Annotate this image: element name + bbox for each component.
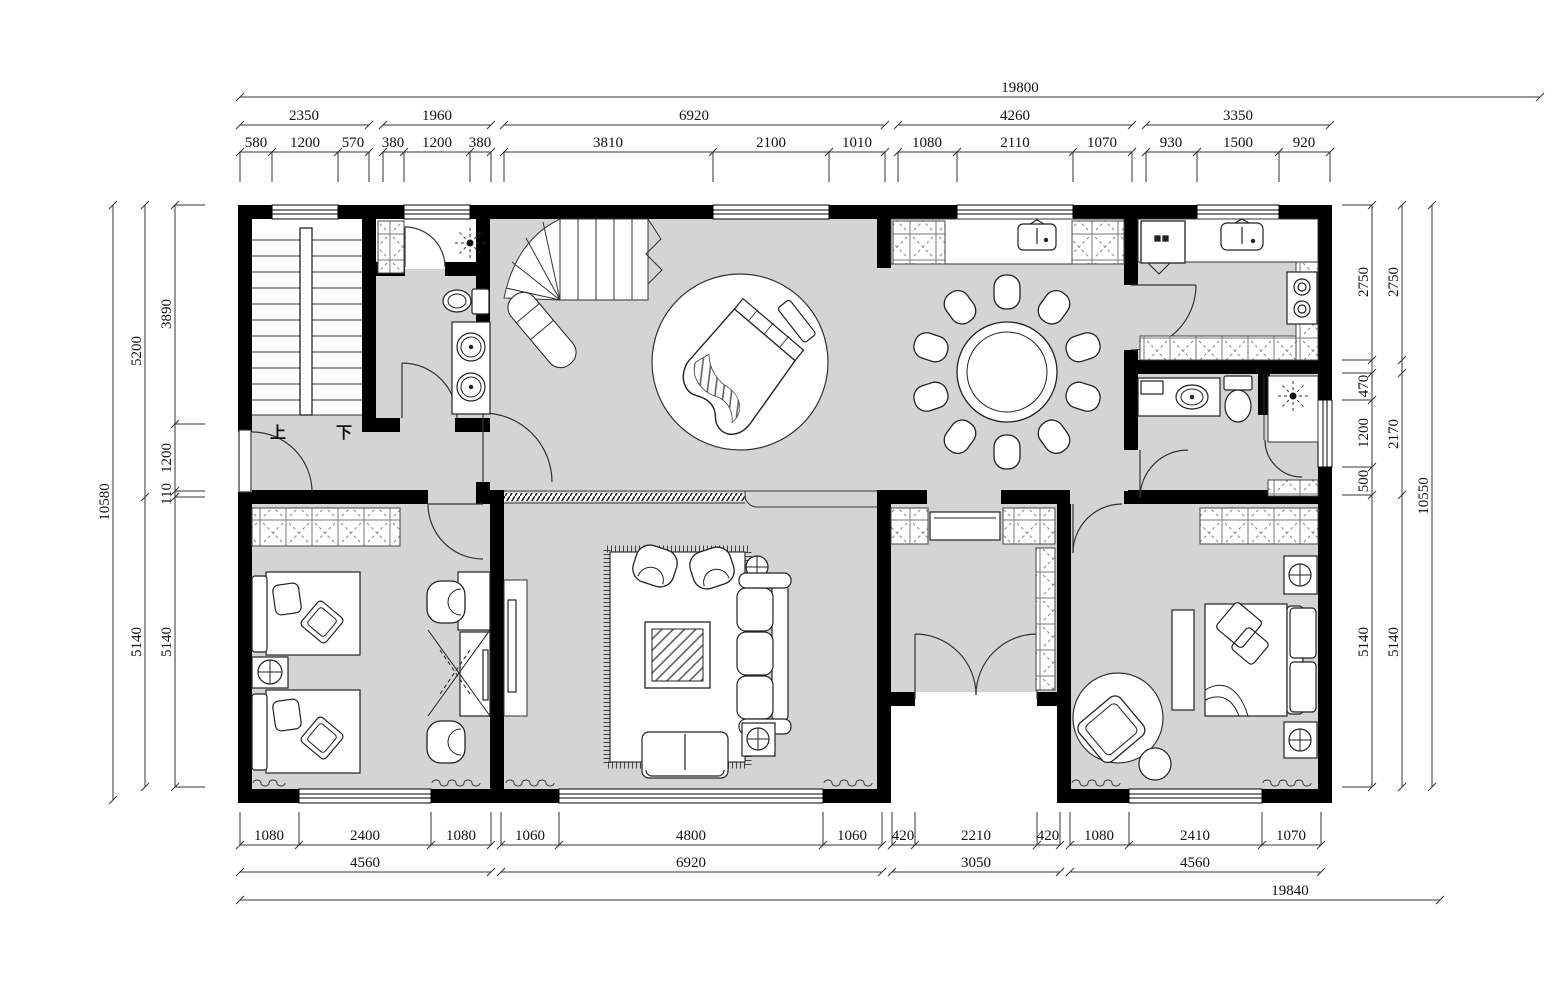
- bed-single-2: [252, 690, 360, 773]
- dim-right-fine-2: 1200: [1356, 418, 1372, 448]
- entry-bench: [930, 512, 1000, 540]
- dim-right-fine-3: 500: [1356, 470, 1372, 493]
- dim-top-fine-2: 570: [342, 135, 365, 151]
- toilet-2: [1224, 376, 1252, 422]
- dim-right-overall: 10550: [1416, 477, 1432, 515]
- wardrobe-left: [252, 508, 400, 546]
- double-bed: [1205, 601, 1316, 716]
- dim-bottom-fine-9: 1080: [1084, 828, 1114, 844]
- nightstand-left: [252, 657, 288, 688]
- window-hall: [713, 205, 829, 219]
- dim-top-fine-11: 1070: [1087, 135, 1117, 151]
- dim-bottom-fine-0: 1080: [254, 828, 284, 844]
- dim-right-groups-1: 2170: [1386, 419, 1402, 449]
- dim-bottom-groups-2: 3050: [961, 855, 991, 871]
- window-bath2: [1318, 400, 1332, 467]
- dim-top-groups-0: 2350: [289, 108, 319, 124]
- dim-bottom-fine-4: 4800: [676, 828, 706, 844]
- window-kitchen: [1197, 205, 1279, 219]
- bed-single-1: [252, 572, 360, 655]
- side-table-plant-2: [747, 728, 769, 750]
- dim-left-fine-3: 5140: [159, 627, 175, 657]
- tv: [508, 600, 516, 692]
- shoe-cabinet-3: [1036, 548, 1055, 690]
- stair-rail: [300, 228, 312, 415]
- dim-top-fine-13: 1500: [1223, 135, 1253, 151]
- lamp-2: [1289, 729, 1311, 751]
- dim-left-overall: 10580: [97, 483, 113, 521]
- dim-right-groups-0: 2750: [1386, 267, 1402, 297]
- dim-top-fine-8: 1010: [842, 135, 872, 151]
- sideboard-sink: [1018, 220, 1056, 250]
- dim-right-fine-1: 470: [1356, 375, 1372, 398]
- dim-top-fine-9: 1080: [912, 135, 942, 151]
- window-bedroom-left: [299, 789, 431, 803]
- dim-top-fine-3: 380: [382, 135, 405, 151]
- dim-left-fine-1: 1200: [159, 443, 175, 473]
- desk-chair-2: [427, 721, 465, 763]
- double-sink-vanity: [452, 322, 490, 414]
- dim-top-groups-1: 1960: [422, 108, 452, 124]
- dim-top-fine-1: 1200: [290, 135, 320, 151]
- floorplan-drawing: 上 下 198002350196069204260335058012005703…: [0, 0, 1549, 997]
- kitchen-sink: [1221, 219, 1263, 250]
- dim-left-groups-0: 5200: [129, 336, 145, 366]
- dim-top-fine-4: 1200: [422, 135, 452, 151]
- lamp-1: [1289, 564, 1311, 586]
- dim-right-groups-2: 5140: [1386, 627, 1402, 657]
- desk-chair-1: [427, 581, 465, 623]
- dim-bottom-fine-8: 420: [1037, 828, 1060, 844]
- dim-bottom-groups-3: 4560: [1180, 855, 1210, 871]
- dim-right-fine-4: 5140: [1356, 627, 1372, 657]
- stairs-down-label: 下: [336, 423, 352, 442]
- loveseat: [642, 732, 728, 778]
- dim-bottom-fine-6: 420: [892, 828, 915, 844]
- dim-bottom-fine-2: 1080: [446, 828, 476, 844]
- dim-top-fine-0: 580: [245, 135, 268, 151]
- wardrobe-right: [1200, 508, 1318, 544]
- dim-top-groups-4: 3350: [1223, 108, 1253, 124]
- dim-bottom-fine-1: 2400: [350, 828, 380, 844]
- stairs-up-label: 上: [270, 423, 286, 442]
- dim-left-fine-0: 3890: [159, 299, 175, 329]
- coffee-table: [645, 622, 710, 688]
- dim-left-fine-2: 110: [159, 483, 175, 505]
- bed-bench: [1172, 610, 1194, 710]
- dim-top-fine-7: 2100: [756, 135, 786, 151]
- dim-top-fine-14: 920: [1293, 135, 1316, 151]
- dim-top-groups-3: 4260: [1000, 108, 1030, 124]
- shoe-cabinet-1: [891, 508, 928, 544]
- floorplan-canvas: 上 下 198002350196069204260335058012005703…: [0, 0, 1549, 997]
- dim-bottom-fine-10: 2410: [1180, 828, 1210, 844]
- shoe-cabinet-2: [1003, 508, 1055, 544]
- dim-left-groups-1: 5140: [129, 627, 145, 657]
- dim-top-overall: 19800: [1001, 80, 1039, 96]
- dim-top-fine-6: 3810: [593, 135, 623, 151]
- sofa: [737, 573, 791, 734]
- window-bath1: [404, 205, 470, 219]
- dim-bottom-fine-7: 2210: [961, 828, 991, 844]
- dim-bottom-fine-5: 1060: [837, 828, 867, 844]
- dim-right-fine-0: 2750: [1356, 267, 1372, 297]
- window-living: [559, 789, 823, 803]
- dim-bottom-fine-11: 1070: [1276, 828, 1306, 844]
- dim-bottom-overall: 19840: [1271, 883, 1309, 899]
- dim-bottom-groups-1: 6920: [676, 855, 706, 871]
- vanity: [1138, 378, 1220, 416]
- dim-bottom-groups-0: 4560: [350, 855, 380, 871]
- dim-top-groups-2: 6920: [679, 108, 709, 124]
- dim-bottom-fine-3: 1060: [515, 828, 545, 844]
- dim-top-fine-12: 930: [1160, 135, 1183, 151]
- ottoman: [1139, 748, 1171, 780]
- window-bedroom-right: [1129, 789, 1262, 803]
- stove: [1287, 272, 1317, 324]
- window-stairs: [272, 205, 338, 219]
- dim-top-fine-5: 380: [469, 135, 492, 151]
- foyer: [930, 512, 1000, 540]
- window-dining: [957, 205, 1073, 219]
- dim-top-fine-10: 2110: [1000, 135, 1029, 151]
